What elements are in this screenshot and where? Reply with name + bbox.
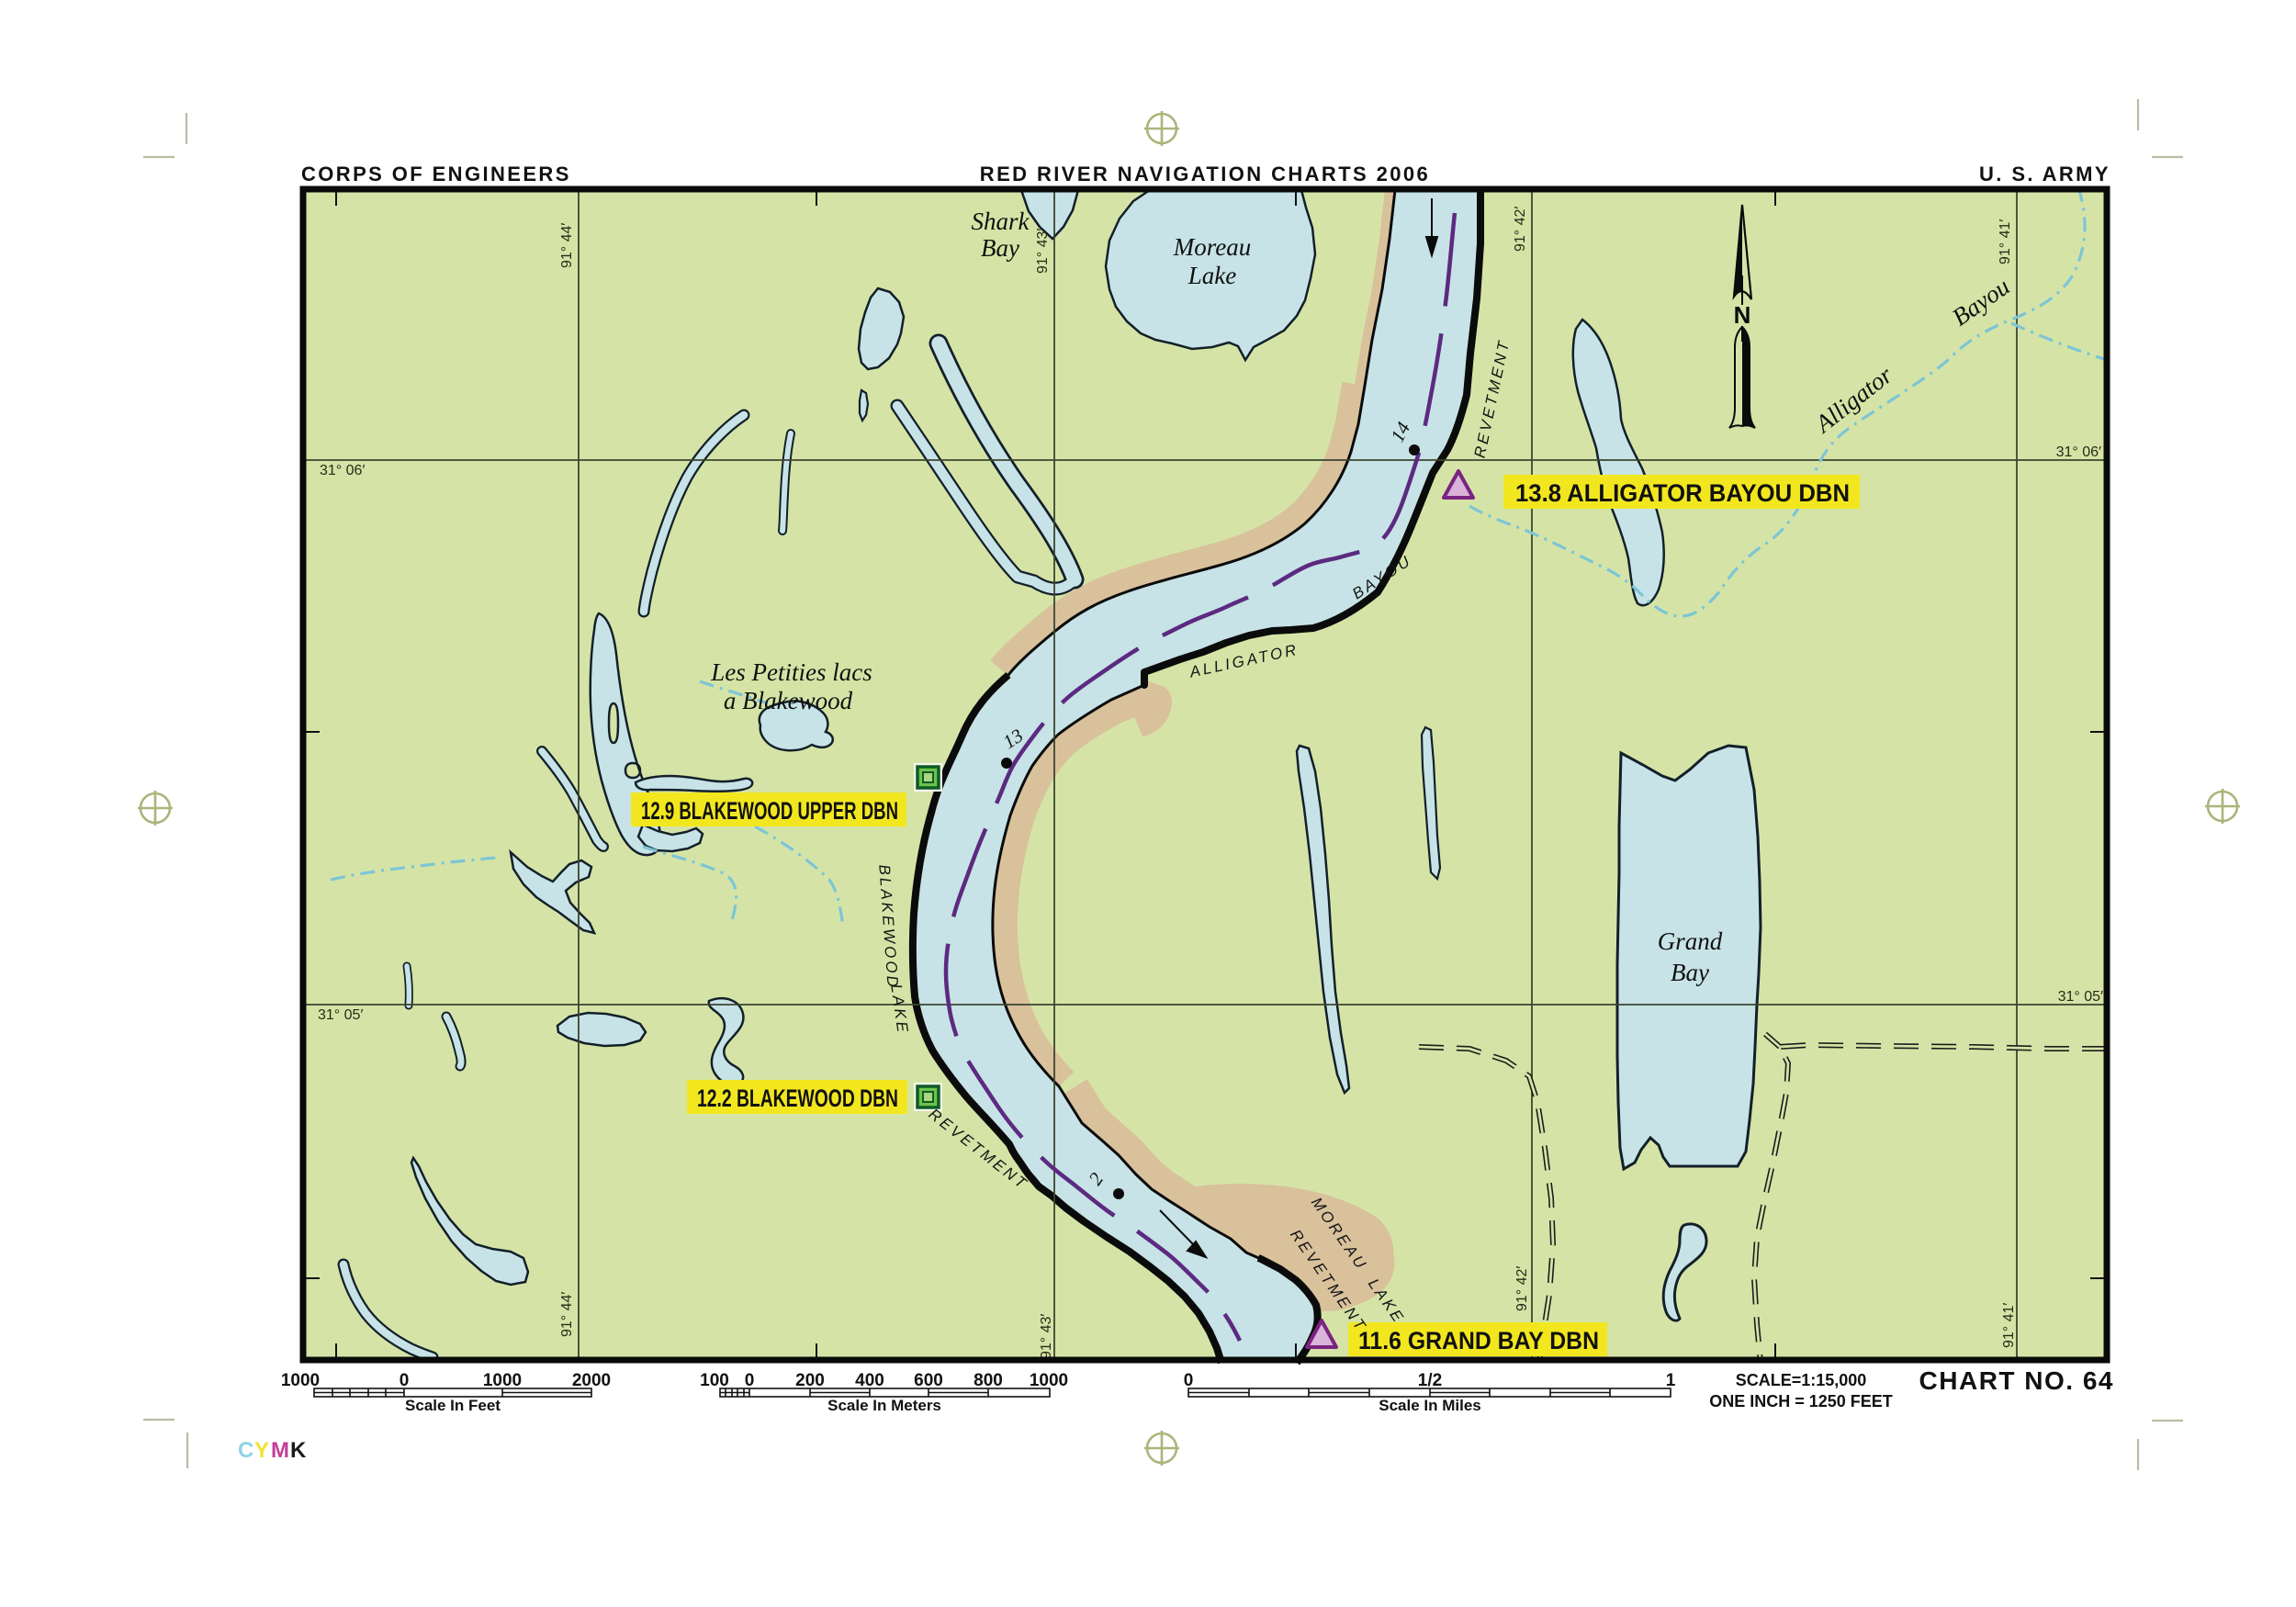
svg-text:13.8 ALLIGATOR BAYOU DBN: 13.8 ALLIGATOR BAYOU DBN — [1515, 479, 1850, 507]
svg-text:CHART NO. 64: CHART NO. 64 — [1919, 1366, 2114, 1395]
svg-text:400: 400 — [855, 1371, 884, 1390]
svg-text:Bay: Bay — [1671, 959, 1709, 986]
svg-text:12.9 BLAKEWOOD UPPER DBN: 12.9 BLAKEWOOD UPPER DBN — [641, 797, 898, 825]
svg-text:1000: 1000 — [1030, 1371, 1068, 1390]
svg-text:31° 05′: 31° 05′ — [318, 1007, 363, 1023]
svg-text:91° 41′: 91° 41′ — [2001, 1303, 2017, 1348]
svg-text:200: 200 — [795, 1371, 825, 1390]
svg-text:Scale In Meters: Scale In Meters — [827, 1397, 941, 1414]
svg-text:a Blakewood: a Blakewood — [724, 687, 853, 714]
svg-text:11.6 GRAND BAY DBN: 11.6 GRAND BAY DBN — [1358, 1327, 1599, 1354]
svg-text:RED RIVER NAVIGATION CHARTS 20: RED RIVER NAVIGATION CHARTS 2006 — [980, 163, 1430, 185]
svg-text:91° 42′: 91° 42′ — [1514, 1266, 1530, 1311]
svg-text:0: 0 — [745, 1371, 755, 1390]
svg-text:M: M — [271, 1438, 289, 1463]
svg-text:Moreau: Moreau — [1173, 233, 1251, 261]
svg-text:91° 43′: 91° 43′ — [1039, 1314, 1054, 1359]
svg-text:31° 06′: 31° 06′ — [2056, 444, 2101, 460]
svg-text:Y: Y — [254, 1438, 269, 1463]
svg-text:31° 05′: 31° 05′ — [2058, 989, 2103, 1005]
svg-text:600: 600 — [914, 1371, 943, 1390]
svg-text:91° 41′: 91° 41′ — [1998, 219, 2013, 264]
svg-text:1: 1 — [1666, 1371, 1676, 1390]
svg-text:Bay: Bay — [981, 234, 1019, 262]
svg-text:12.2 BLAKEWOOD DBN: 12.2 BLAKEWOOD DBN — [697, 1084, 898, 1112]
svg-text:Grand: Grand — [1658, 927, 1723, 955]
svg-text:SCALE=1:15,000: SCALE=1:15,000 — [1736, 1371, 1867, 1389]
svg-text:1000: 1000 — [483, 1371, 522, 1390]
svg-text:Shark: Shark — [972, 208, 1030, 235]
svg-text:C: C — [238, 1438, 253, 1463]
svg-text:100: 100 — [700, 1371, 729, 1390]
svg-text:800: 800 — [974, 1371, 1003, 1390]
svg-text:91° 42′: 91° 42′ — [1513, 207, 1528, 252]
svg-text:Lake: Lake — [1187, 262, 1237, 289]
svg-text:Scale In Feet: Scale In Feet — [405, 1397, 501, 1414]
svg-text:31° 06′: 31° 06′ — [320, 463, 365, 478]
svg-text:U. S. ARMY: U. S. ARMY — [1979, 163, 2110, 185]
svg-text:1000: 1000 — [281, 1371, 320, 1390]
svg-text:0: 0 — [1184, 1371, 1194, 1390]
svg-text:Scale In Miles: Scale In Miles — [1379, 1397, 1481, 1414]
svg-text:1/2: 1/2 — [1418, 1371, 1442, 1390]
svg-text:91° 44′: 91° 44′ — [559, 223, 575, 268]
svg-text:91° 44′: 91° 44′ — [559, 1292, 575, 1337]
svg-text:ONE INCH = 1250 FEET: ONE INCH = 1250 FEET — [1709, 1392, 1893, 1410]
svg-text:2000: 2000 — [572, 1371, 611, 1390]
svg-text:CORPS OF ENGINEERS: CORPS OF ENGINEERS — [301, 163, 571, 185]
svg-text:Les Petities lacs: Les Petities lacs — [710, 658, 872, 686]
svg-text:91° 43′: 91° 43′ — [1035, 229, 1051, 274]
svg-text:0: 0 — [400, 1371, 410, 1390]
svg-text:K: K — [290, 1438, 307, 1463]
svg-text:N: N — [1734, 301, 1751, 329]
